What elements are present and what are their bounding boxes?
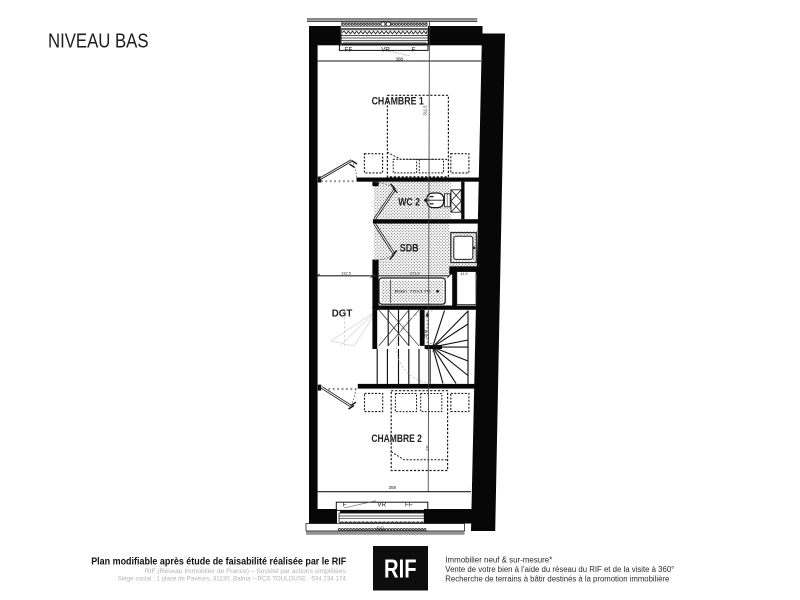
svg-text:CHAMBRE 1: CHAMBRE 1 [372,95,424,107]
svg-text:Immobilier neuf & sur-mesure*: Immobilier neuf & sur-mesure* [445,555,552,564]
svg-text:RIF (Réseau Immobilier de Fran: RIF (Réseau Immobilier de France) – Soci… [145,568,347,575]
svg-text:Siège social : 1 place de Pave: Siège social : 1 place de Paveurs, 31130… [118,575,346,582]
svg-text:Vente de votre bien à l’aide d: Vente de votre bien à l’aide du réseau d… [445,565,674,574]
svg-text:FF: FF [405,502,413,509]
svg-text:359: 359 [389,485,397,490]
svg-text:SDB: SDB [400,243,419,255]
svg-text:RIF: RIF [384,554,417,584]
svg-text:DGT: DGT [332,307,353,319]
svg-text:15 M: 15 M [424,330,428,338]
svg-text:Plan modifiable après étude de: Plan modifiable après étude de faisabili… [91,556,346,567]
svg-text:WC 2: WC 2 [398,196,420,208]
svg-text:388: 388 [396,56,404,61]
svg-text:Recherche de terrains à bâtir: Recherche de terrains à bâtir destinés à… [445,574,669,583]
svg-text:VR: VR [381,47,390,54]
svg-text:NIVEAU BAS: NIVEAU BAS [48,31,149,53]
svg-text:GG: GG [376,527,384,533]
svg-text:FF: FF [345,47,353,54]
svg-text:311.5: 311.5 [423,105,428,116]
svg-text:Bain 70x170: Bain 70x170 [395,289,432,294]
svg-text:311: 311 [426,445,430,451]
svg-text:CHAMBRE 2: CHAMBRE 2 [371,433,422,445]
svg-text:F: F [412,47,416,54]
svg-text:132.5: 132.5 [341,270,351,275]
svg-text:VR: VR [377,502,386,509]
svg-text:41.9: 41.9 [461,272,468,276]
svg-text:171.2: 171.2 [410,270,420,275]
svg-text:F: F [343,502,347,509]
